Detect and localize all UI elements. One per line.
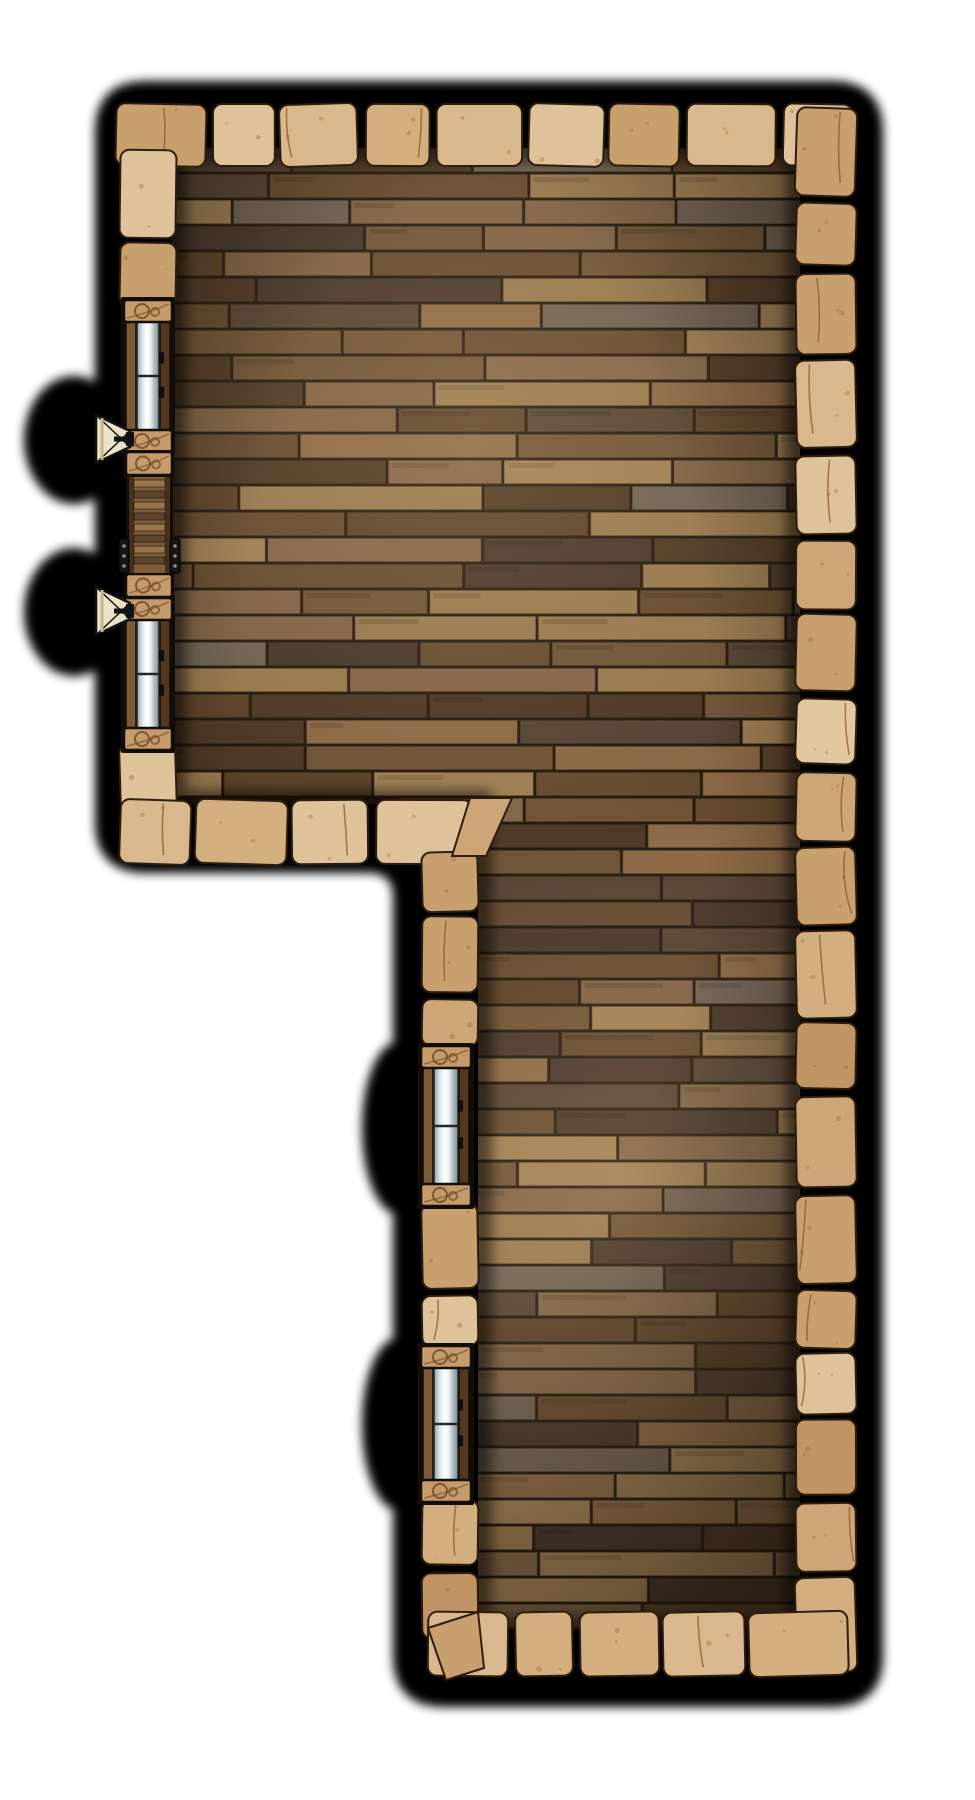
stone-block-speckle — [814, 1065, 816, 1067]
stone-block — [421, 1203, 479, 1289]
stone-block-speckle — [836, 1116, 841, 1121]
stone-block — [795, 359, 857, 448]
stone-block-speckle — [831, 1374, 833, 1376]
stone-block-speckle — [803, 1453, 806, 1456]
stone-block — [279, 103, 358, 167]
stone-block-speckle — [387, 853, 391, 857]
wall-top — [115, 103, 852, 167]
stone-block — [748, 1611, 849, 1678]
stone-block-speckle — [536, 1666, 542, 1672]
stone-block-speckle — [256, 135, 261, 140]
stone-block-speckle — [447, 961, 450, 964]
stone-block-speckle — [540, 157, 545, 162]
stone-block — [795, 772, 857, 842]
stone-block — [796, 1503, 857, 1572]
stone-block-speckle — [836, 414, 839, 417]
stone-block — [608, 103, 680, 166]
window-3-latch-top — [458, 1100, 463, 1111]
stone-block — [422, 1500, 479, 1565]
stone-block-speckle — [615, 1640, 618, 1643]
sconce-1-arm — [114, 437, 126, 442]
stone-block-speckle — [225, 122, 228, 125]
stone-block-speckle — [836, 309, 839, 312]
wall-left-upper — [119, 150, 176, 307]
stone-block — [213, 104, 275, 166]
stone-block — [528, 103, 605, 167]
stone-block-speckle — [825, 220, 829, 224]
stone-block — [795, 274, 856, 355]
stone-block — [795, 847, 857, 926]
stone-block-speckle — [840, 1620, 843, 1623]
stone-block-speckle — [124, 256, 129, 261]
stone-block — [421, 851, 479, 912]
wall-lower-bottom — [428, 1611, 849, 1678]
stone-block-speckle — [328, 857, 331, 860]
shuttered-window-bracket-bolt — [173, 544, 177, 548]
stone-block-speckle — [614, 1628, 619, 1633]
shuttered-window — [119, 475, 180, 575]
window-1-rail-outer — [126, 322, 136, 430]
stone-block-speckle — [834, 489, 838, 493]
stone-block — [687, 104, 776, 167]
shuttered-window-rung — [134, 524, 165, 531]
sconce-2-mount — [126, 604, 134, 618]
window-3-latch-bottom — [458, 1138, 463, 1149]
shuttered-window-rung — [134, 557, 165, 564]
shuttered-window-bracket-bolt — [173, 554, 177, 558]
stone-block — [119, 242, 176, 306]
stone-block-speckle — [839, 905, 842, 908]
stone-block — [796, 1420, 856, 1495]
shuttered-window-bracket-bolt — [173, 564, 177, 568]
stone-block — [195, 799, 288, 866]
window-3 — [418, 1043, 474, 1209]
shuttered-window-bracket-bolt — [122, 564, 126, 568]
stone-block — [119, 799, 192, 865]
stone-block-speckle — [559, 1667, 562, 1670]
window-4-latch-top — [458, 1399, 463, 1410]
stone-block-speckle — [825, 751, 828, 754]
stone-block-speckle — [842, 876, 846, 880]
stone-block-speckle — [646, 122, 649, 125]
window-1-latch-bottom — [159, 387, 164, 398]
stone-block — [795, 202, 857, 266]
window-2-rail-outer — [126, 620, 136, 728]
stone-block-speckle — [814, 748, 816, 750]
stone-block-speckle — [836, 1342, 838, 1344]
stone-block-speckle — [629, 128, 633, 132]
stone-block-speckle — [461, 116, 465, 120]
stone-block-speckle — [806, 1166, 809, 1169]
stone-block-speckle — [407, 131, 411, 135]
stone-block-speckle — [467, 1022, 473, 1028]
stone-block — [580, 1611, 660, 1676]
stone-block-speckle — [847, 573, 850, 576]
sconce-1-mount — [126, 432, 134, 446]
window-2-rail-inner — [160, 620, 170, 728]
stone-block-speckle — [412, 815, 416, 819]
window-3-rail-outer — [423, 1068, 433, 1184]
shuttered-window-rung — [134, 513, 165, 520]
stone-block-speckle — [308, 814, 312, 818]
stone-block-speckle — [594, 158, 599, 163]
stone-block-speckle — [706, 1640, 712, 1646]
stone-block-speckle — [726, 1634, 730, 1638]
window-4-rail-inner — [459, 1368, 469, 1480]
stone-block-speckle — [801, 939, 805, 943]
shuttered-window-bracket-bolt — [122, 554, 126, 558]
stone-block-speckle — [286, 135, 290, 139]
shuttered-window-rung — [134, 546, 165, 553]
shuttered-window-rung — [134, 535, 165, 542]
stone-block — [795, 1195, 857, 1284]
stone-block-speckle — [466, 1210, 469, 1213]
stone-block-speckle — [449, 1034, 455, 1040]
stone-block-speckle — [455, 1528, 459, 1532]
stone-block — [515, 1611, 573, 1676]
stone-block-speckle — [812, 1536, 815, 1539]
stone-block-speckle — [845, 391, 850, 396]
stone-block-speckle — [444, 889, 448, 893]
stone-block-speckle — [831, 788, 833, 790]
wall-lowerleft-b — [421, 1203, 479, 1346]
stone-block-speckle — [817, 228, 821, 232]
stone-block-speckle — [821, 563, 824, 566]
stone-block-speckle — [834, 672, 837, 675]
stone-block-speckle — [824, 1534, 827, 1537]
wall-lowerleft-a — [421, 851, 479, 1046]
stone-block-speckle — [139, 184, 144, 189]
stone-block-speckle — [219, 821, 222, 824]
stone-block-speckle — [457, 1323, 462, 1328]
stone-block — [795, 1022, 856, 1089]
stone-block-speckle — [725, 131, 728, 134]
stone-block-speckle — [799, 1250, 804, 1255]
window-4 — [418, 1343, 474, 1505]
sconce-2-arm — [114, 609, 126, 614]
stone-block-speckle — [813, 1301, 817, 1305]
stone-block-speckle — [507, 150, 511, 154]
wall-right — [795, 107, 858, 1673]
stone-block — [795, 1096, 857, 1187]
battle-map-canvas: L-shaped wooden-floor room battle map ti… — [0, 0, 975, 1800]
wall-toproom-bottom — [119, 799, 472, 866]
stone-block-speckle — [836, 784, 839, 787]
shuttered-window-rung — [134, 480, 165, 487]
stone-block-speckle — [839, 310, 844, 315]
shuttered-window-rail-left — [129, 477, 134, 573]
filler-block-2 — [124, 572, 174, 599]
stone-block-speckle — [827, 492, 831, 496]
window-4-rail-outer — [423, 1368, 433, 1480]
stone-block-speckle — [148, 225, 151, 228]
shuttered-window-rung — [134, 491, 165, 498]
stone-block-speckle — [411, 117, 416, 122]
stone-block-speckle — [251, 839, 255, 843]
stone-block-speckle — [467, 945, 471, 949]
stone-block-speckle — [805, 1446, 810, 1451]
stone-block-speckle — [429, 1259, 433, 1263]
stone-block — [422, 1295, 479, 1346]
stone-block-speckle — [723, 127, 726, 130]
stone-block-speckle — [140, 813, 144, 817]
stone-block — [795, 930, 857, 1019]
stone-block-speckle — [435, 1557, 437, 1559]
stone-block — [795, 614, 857, 692]
stone-block — [291, 800, 368, 865]
map-page: L-shaped wooden-floor room battle map ti… — [0, 0, 975, 1800]
stone-block — [795, 455, 857, 534]
window-2-latch-top — [159, 650, 164, 661]
shuttered-window-rung — [134, 502, 165, 509]
stone-block-speckle — [165, 268, 167, 270]
stone-block-speckle — [175, 108, 178, 111]
window-1-rail-inner — [160, 322, 170, 430]
stone-block-speckle — [430, 1311, 433, 1314]
stone-block-speckle — [129, 775, 135, 781]
stone-block-speckle — [808, 637, 813, 642]
stone-block — [795, 698, 857, 765]
stone-block-speckle — [811, 975, 816, 980]
stone-block — [119, 150, 176, 239]
stone-block-speckle — [790, 109, 794, 113]
stone-block-speckle — [803, 147, 807, 151]
stone-block-speckle — [834, 114, 838, 118]
window-4-latch-bottom — [458, 1435, 463, 1446]
stone-block-speckle — [807, 1226, 812, 1231]
stone-block-speckle — [319, 117, 323, 121]
stone-block-speckle — [446, 1588, 450, 1592]
stone-block — [795, 107, 858, 197]
stone-block-speckle — [844, 1065, 848, 1069]
window-3-rail-inner — [459, 1068, 469, 1184]
shuttered-window-bracket-bolt — [122, 544, 126, 548]
stone-block — [422, 916, 479, 992]
stone-block-speckle — [818, 1373, 820, 1375]
shuttered-window-rail-right — [165, 477, 170, 573]
stone-block-speckle — [783, 1630, 786, 1633]
map-root — [24, 86, 975, 1702]
window-1-latch-top — [159, 352, 164, 363]
stone-block-speckle — [161, 806, 164, 809]
filler-block-1 — [124, 450, 174, 477]
stone-block — [795, 1290, 857, 1350]
stone-block — [437, 104, 523, 166]
window-2-latch-bottom — [159, 685, 164, 696]
